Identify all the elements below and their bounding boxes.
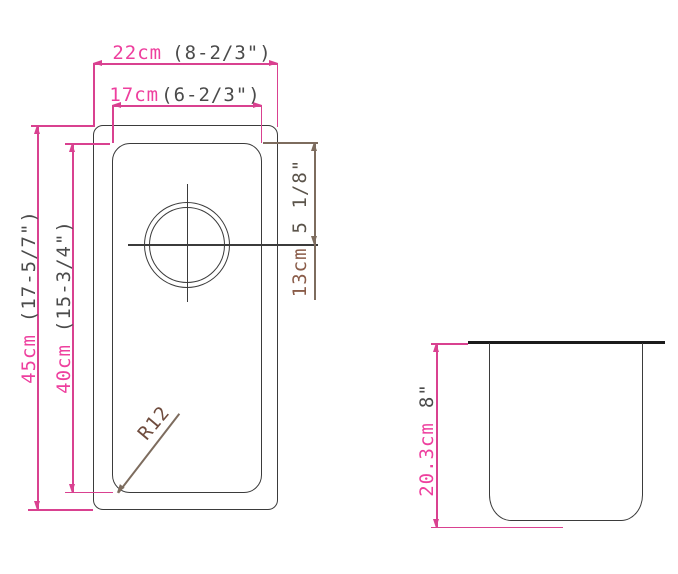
extension-line xyxy=(93,63,95,126)
arrowhead-bottom xyxy=(34,501,40,510)
bowl-section-outline xyxy=(489,343,643,521)
dim-metric-text: 13cm xyxy=(289,247,311,297)
dim-metric-text: 40cm xyxy=(53,344,75,394)
dim-imperial-text: (17-5/7") xyxy=(18,210,40,322)
sink-technical-drawing: 22cm (8-2/3") 17cm (6-2/3") 45cm (17-5/7… xyxy=(0,0,678,574)
arrowhead-top xyxy=(34,125,40,134)
extension-line xyxy=(112,105,114,143)
arrowhead-bottom xyxy=(69,484,75,493)
dim-outer-width-label: 22cm (8-2/3") xyxy=(108,42,276,64)
extension-line xyxy=(431,527,563,529)
extension-line xyxy=(261,105,263,143)
dim-drain-offset-label: 13cm 5 1/8" xyxy=(289,143,311,313)
dim-metric-text: 20.3cm xyxy=(416,422,438,497)
arrowhead-top xyxy=(311,142,317,151)
dim-metric-text: 45cm xyxy=(18,334,40,384)
dim-imperial-text: (15-3/4") xyxy=(53,220,75,332)
dim-line xyxy=(314,142,316,300)
dim-metric-text: 22cm xyxy=(112,42,162,64)
arrowhead-left xyxy=(93,60,102,66)
drain-centerline-vertical xyxy=(187,184,188,302)
arrowhead-bottom xyxy=(311,236,317,245)
extension-line xyxy=(31,125,95,127)
extension-line xyxy=(277,63,279,127)
dim-imperial-text: 8" xyxy=(416,383,438,408)
dim-imperial-text: (6-2/3") xyxy=(161,84,261,106)
dim-metric-text: 17cm xyxy=(109,84,159,106)
arrowhead-top xyxy=(69,143,75,152)
dim-inner-height-label: 40cm (15-3/4") xyxy=(53,187,75,427)
dim-depth-label: 20.3cm 8" xyxy=(416,340,438,540)
dim-outer-height-label: 45cm (17-5/7") xyxy=(18,177,40,417)
dim-imperial-text: 5 1/8" xyxy=(289,159,311,234)
dim-inner-width-label: 17cm (6-2/3") xyxy=(110,84,260,106)
dim-imperial-text: (8-2/3") xyxy=(172,42,272,64)
